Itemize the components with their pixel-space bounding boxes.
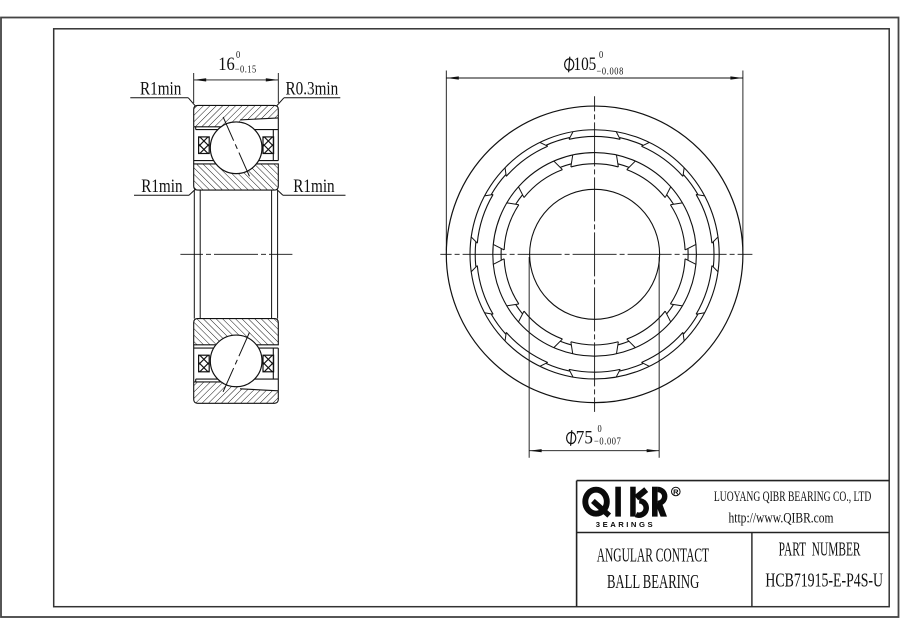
svg-text:3EARINGS: 3EARINGS bbox=[596, 520, 655, 529]
svg-text:−0.15: −0.15 bbox=[235, 65, 257, 76]
svg-text:16: 16 bbox=[218, 53, 235, 74]
svg-text:0: 0 bbox=[599, 50, 603, 61]
svg-text:R0.3min: R0.3min bbox=[286, 78, 339, 99]
svg-text:http://www.QIBR.com: http://www.QIBR.com bbox=[728, 509, 834, 526]
svg-text:R: R bbox=[673, 488, 679, 497]
svg-text:LUOYANG QIBR BEARING CO., LTD: LUOYANG QIBR BEARING CO., LTD bbox=[714, 488, 871, 505]
svg-text:0: 0 bbox=[598, 424, 602, 435]
svg-text:ANGULAR CONTACT: ANGULAR CONTACT bbox=[597, 543, 709, 566]
svg-text:0: 0 bbox=[236, 50, 240, 61]
svg-text:HCB71915-E-P4S-U: HCB71915-E-P4S-U bbox=[765, 569, 883, 591]
svg-text:BALL BEARING: BALL BEARING bbox=[607, 570, 699, 593]
svg-text:R1min: R1min bbox=[293, 175, 335, 196]
svg-text:75: 75 bbox=[576, 427, 593, 448]
svg-text:−0.008: −0.008 bbox=[597, 67, 624, 78]
svg-text:−0.007: −0.007 bbox=[594, 437, 621, 448]
svg-text:105: 105 bbox=[574, 54, 597, 75]
svg-text:R1min: R1min bbox=[141, 175, 183, 196]
svg-text:PART NUMBER: PART NUMBER bbox=[779, 538, 861, 560]
svg-text:R1min: R1min bbox=[140, 78, 182, 99]
